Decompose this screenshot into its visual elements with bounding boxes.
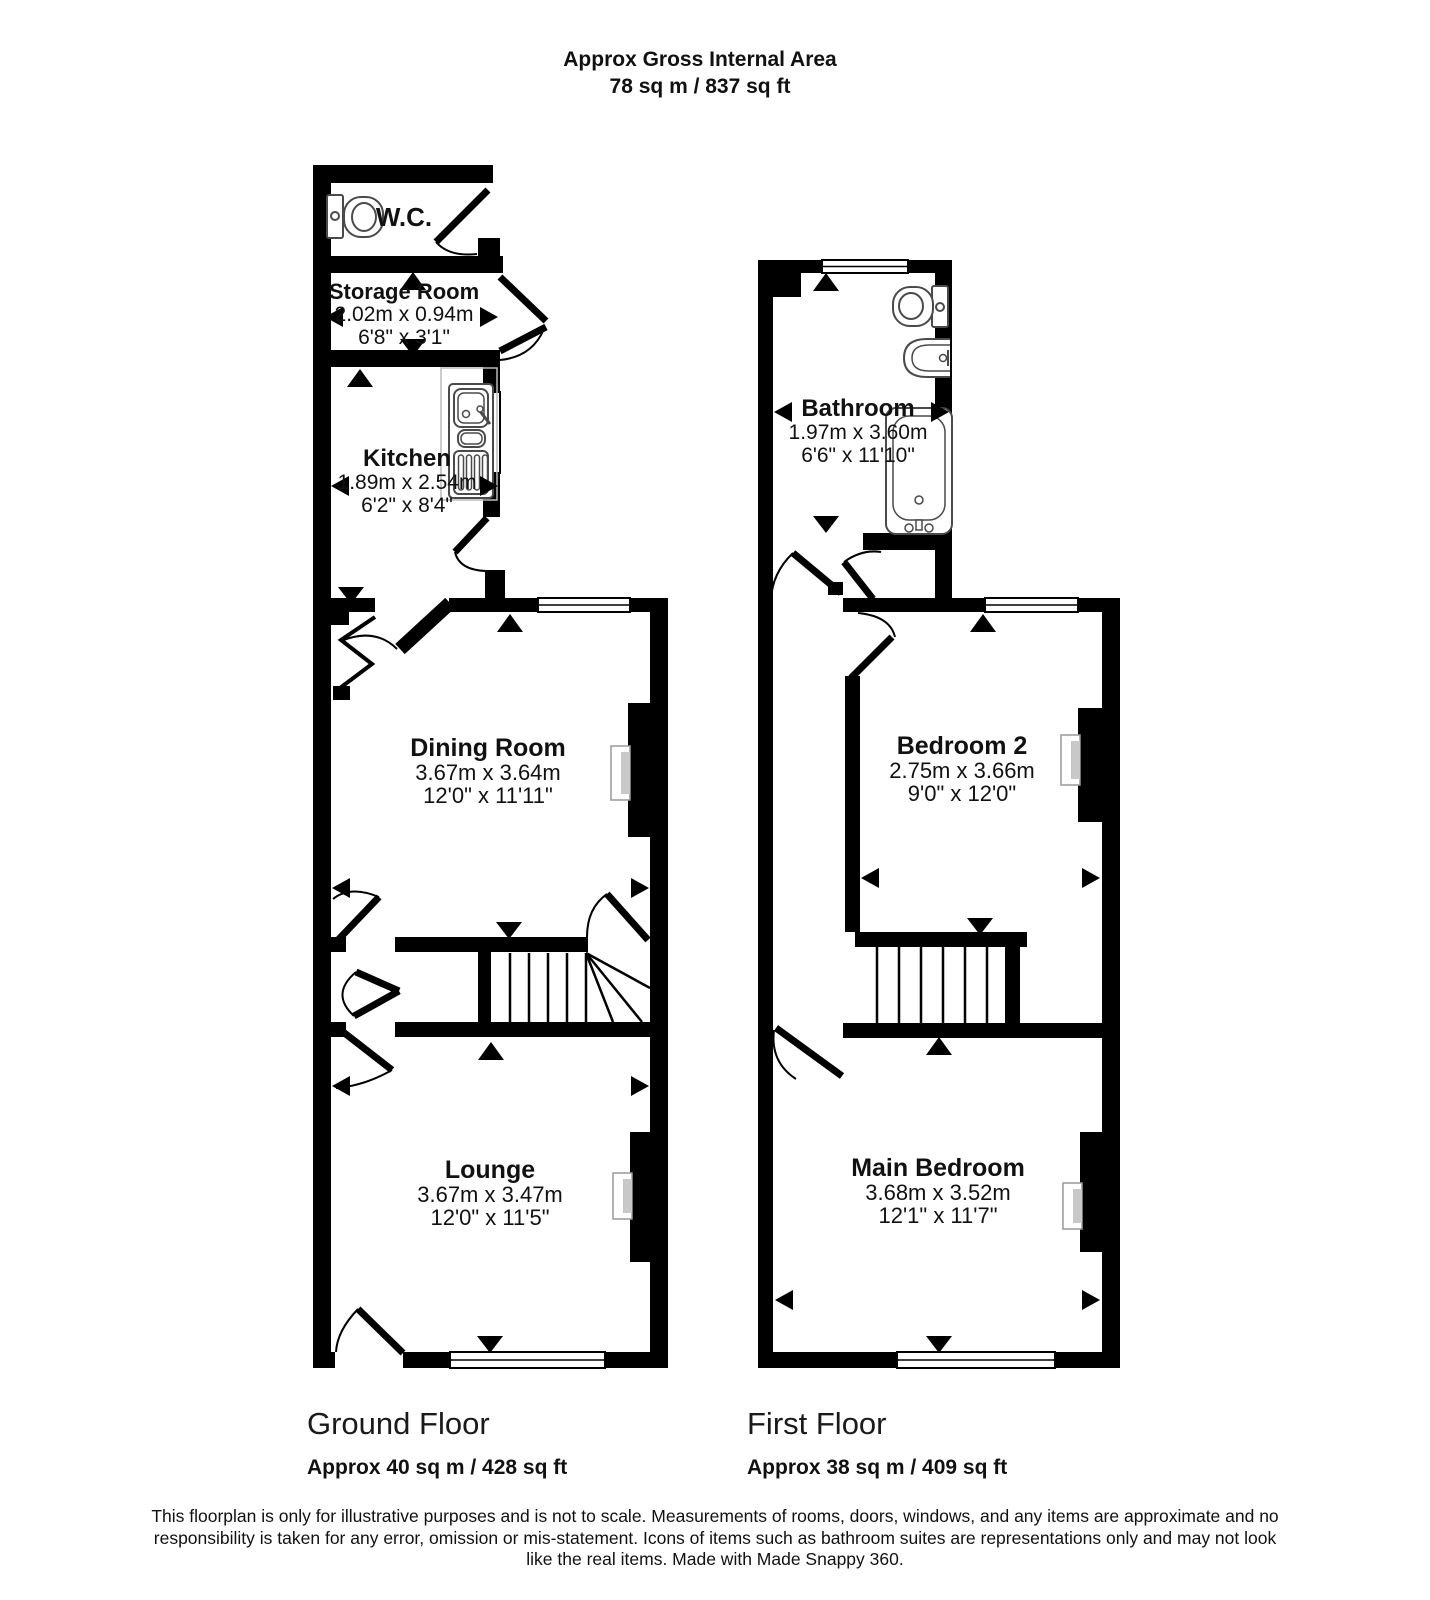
room-label-lounge: Lounge 3.67m x 3.47m 12'0" x 11'5" <box>417 1158 563 1229</box>
wall <box>1055 1352 1120 1368</box>
floorplan-page: Approx Gross Internal Area 78 sq m / 837… <box>0 0 1430 1600</box>
basin-icon <box>904 339 950 377</box>
wall <box>313 256 503 273</box>
ground-floor-caption: Ground Floor Approx 40 sq m / 428 sq ft <box>307 1406 567 1480</box>
room-dim-imperial: 6'8" x 3'1" <box>329 326 479 349</box>
floor-name: Ground Floor <box>307 1406 567 1442</box>
room-dim-imperial: 12'0" x 11'5" <box>417 1206 563 1229</box>
wall <box>855 932 1027 947</box>
wall-stub <box>331 610 349 625</box>
room-dim-metric: 2.02m x 0.94m <box>329 303 479 326</box>
room-dim-imperial: 6'6" x 11'10" <box>789 444 928 467</box>
room-dim-imperial: 12'0" x 11'11" <box>410 784 566 807</box>
lounge-window <box>450 1352 605 1368</box>
room-dim-imperial: 6'2" x 8'4" <box>338 494 477 517</box>
wall <box>863 533 952 550</box>
lounge-chimney-breast <box>613 1132 652 1262</box>
room-dim-imperial: 12'1" x 11'7" <box>851 1204 1025 1227</box>
room-dim-metric: 1.89m x 2.54m <box>338 471 477 494</box>
wall <box>478 952 491 1022</box>
wall <box>1102 598 1120 1368</box>
toilet-icon <box>893 286 948 327</box>
wall <box>313 598 375 612</box>
dining-chimney-breast <box>611 703 650 837</box>
main-bedroom-window <box>897 1352 1055 1368</box>
room-dim-metric: 3.68m x 3.52m <box>851 1181 1025 1204</box>
wall <box>313 165 493 183</box>
room-label-bedroom2: Bedroom 2 2.75m x 3.66m 9'0" x 12'0" <box>889 734 1035 805</box>
wall <box>395 1022 650 1037</box>
room-name: Kitchen <box>338 446 477 471</box>
wall <box>843 1023 1120 1038</box>
wall <box>758 1352 897 1368</box>
floor-area: Approx 38 sq m / 409 sq ft <box>747 1456 1007 1480</box>
ground-stairs <box>510 953 650 1022</box>
first-stairs <box>877 947 987 1023</box>
dining-window <box>538 598 630 612</box>
wall <box>313 1352 335 1368</box>
room-name: Bathroom <box>789 396 928 421</box>
wall <box>605 1352 668 1368</box>
gross-area-title: Approx Gross Internal Area <box>0 48 1400 72</box>
floor-area: Approx 40 sq m / 428 sq ft <box>307 1456 567 1480</box>
wall <box>449 598 538 612</box>
room-label-bathroom: Bathroom 1.97m x 3.60m 6'6" x 11'10" <box>789 396 928 467</box>
room-name: Lounge <box>417 1158 563 1183</box>
wall <box>845 676 860 932</box>
wall <box>773 273 801 297</box>
room-name: Dining Room <box>410 736 566 761</box>
room-label-dining: Dining Room 3.67m x 3.64m 12'0" x 11'11" <box>410 736 566 807</box>
room-label-main-bedroom: Main Bedroom 3.68m x 3.52m 12'1" x 11'7" <box>851 1156 1025 1227</box>
wall <box>843 598 985 612</box>
toilet-icon <box>327 195 383 238</box>
wall <box>395 937 588 952</box>
room-label-wc: W.C. <box>376 202 432 233</box>
room-dim-metric: 1.97m x 3.60m <box>789 421 928 444</box>
bedroom2-window <box>985 598 1078 612</box>
wall-diagonal <box>400 603 450 649</box>
room-dim-imperial: 9'0" x 12'0" <box>889 782 1035 805</box>
wall <box>403 1352 450 1368</box>
disclaimer-text: This floorplan is only for illustrative … <box>140 1506 1290 1571</box>
room-label-kitchen: Kitchen 1.89m x 2.54m 6'2" x 8'4" <box>338 446 477 517</box>
room-label-storage: Storage Room 2.02m x 0.94m 6'8" x 3'1" <box>329 280 479 349</box>
wall <box>758 260 773 1368</box>
page-title: Approx Gross Internal Area 78 sq m / 837… <box>0 48 1400 99</box>
room-dim-metric: 3.67m x 3.64m <box>410 761 566 784</box>
room-dim-metric: 3.67m x 3.47m <box>417 1183 563 1206</box>
first-floor-caption: First Floor Approx 38 sq m / 409 sq ft <box>747 1406 1007 1480</box>
gross-area-value: 78 sq m / 837 sq ft <box>0 75 1400 99</box>
room-name: Storage Room <box>329 280 479 303</box>
floorplan-drawing <box>0 0 1430 1600</box>
bathroom-window <box>822 260 908 273</box>
wall <box>650 598 668 1368</box>
wall <box>1005 947 1020 1023</box>
bedroom2-chimney-breast <box>1061 708 1102 822</box>
wall <box>313 350 493 367</box>
room-name: Main Bedroom <box>851 1156 1025 1181</box>
floor-name: First Floor <box>747 1406 1007 1442</box>
room-name: Bedroom 2 <box>889 734 1035 759</box>
room-dim-metric: 2.75m x 3.66m <box>889 759 1035 782</box>
wall <box>758 260 822 273</box>
main-bedroom-chimney-breast <box>1063 1132 1102 1252</box>
